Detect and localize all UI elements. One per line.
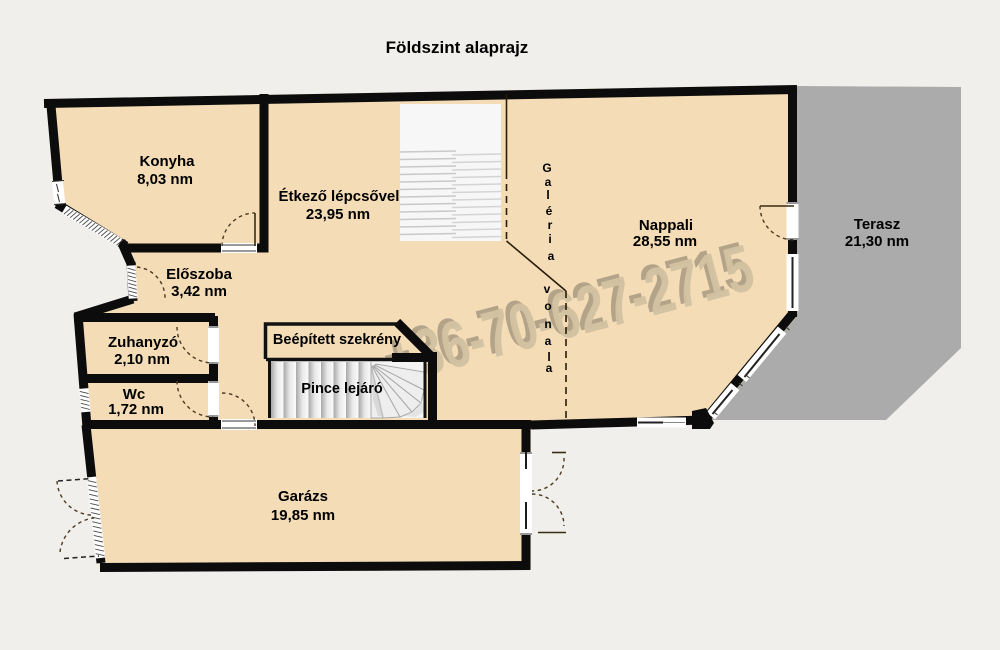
svg-text:a: a <box>545 334 552 348</box>
svg-text:n: n <box>544 317 551 331</box>
svg-text:Terasz: Terasz <box>854 216 900 233</box>
svg-text:1,72 nm: 1,72 nm <box>108 401 164 418</box>
svg-text:a: a <box>548 249 555 263</box>
svg-text:a: a <box>545 175 552 189</box>
svg-text:28,55 nm: 28,55 nm <box>633 233 697 250</box>
svg-text:Konyha: Konyha <box>139 153 195 170</box>
svg-text:Földszint alaprajz: Földszint alaprajz <box>386 38 529 57</box>
svg-text:l: l <box>546 188 549 202</box>
svg-text:i: i <box>548 232 551 246</box>
svg-text:Étkező lépcsővel: Étkező lépcsővel <box>279 188 400 205</box>
svg-text:8,03 nm: 8,03 nm <box>137 171 193 188</box>
svg-text:a: a <box>546 361 553 375</box>
svg-text:o: o <box>544 299 551 313</box>
svg-text:v: v <box>544 282 551 296</box>
svg-text:Zuhanyzó: Zuhanyzó <box>108 334 178 351</box>
svg-text:Garázs: Garázs <box>278 488 328 505</box>
svg-text:3,42 nm: 3,42 nm <box>171 283 227 300</box>
svg-text:Előszoba: Előszoba <box>166 266 233 283</box>
svg-text:Pince lejáró: Pince lejáró <box>301 381 383 397</box>
svg-text:r: r <box>548 218 553 232</box>
svg-text:G: G <box>542 161 551 175</box>
svg-text:é: é <box>546 204 553 218</box>
svg-text:Nappali: Nappali <box>639 217 693 234</box>
svg-text:Beépített szekrény: Beépített szekrény <box>273 332 401 348</box>
svg-text:19,85 nm: 19,85 nm <box>271 507 335 524</box>
svg-text:23,95 nm: 23,95 nm <box>306 206 370 223</box>
svg-text:2,10 nm: 2,10 nm <box>114 351 170 368</box>
svg-text:21,30 nm: 21,30 nm <box>845 233 909 250</box>
